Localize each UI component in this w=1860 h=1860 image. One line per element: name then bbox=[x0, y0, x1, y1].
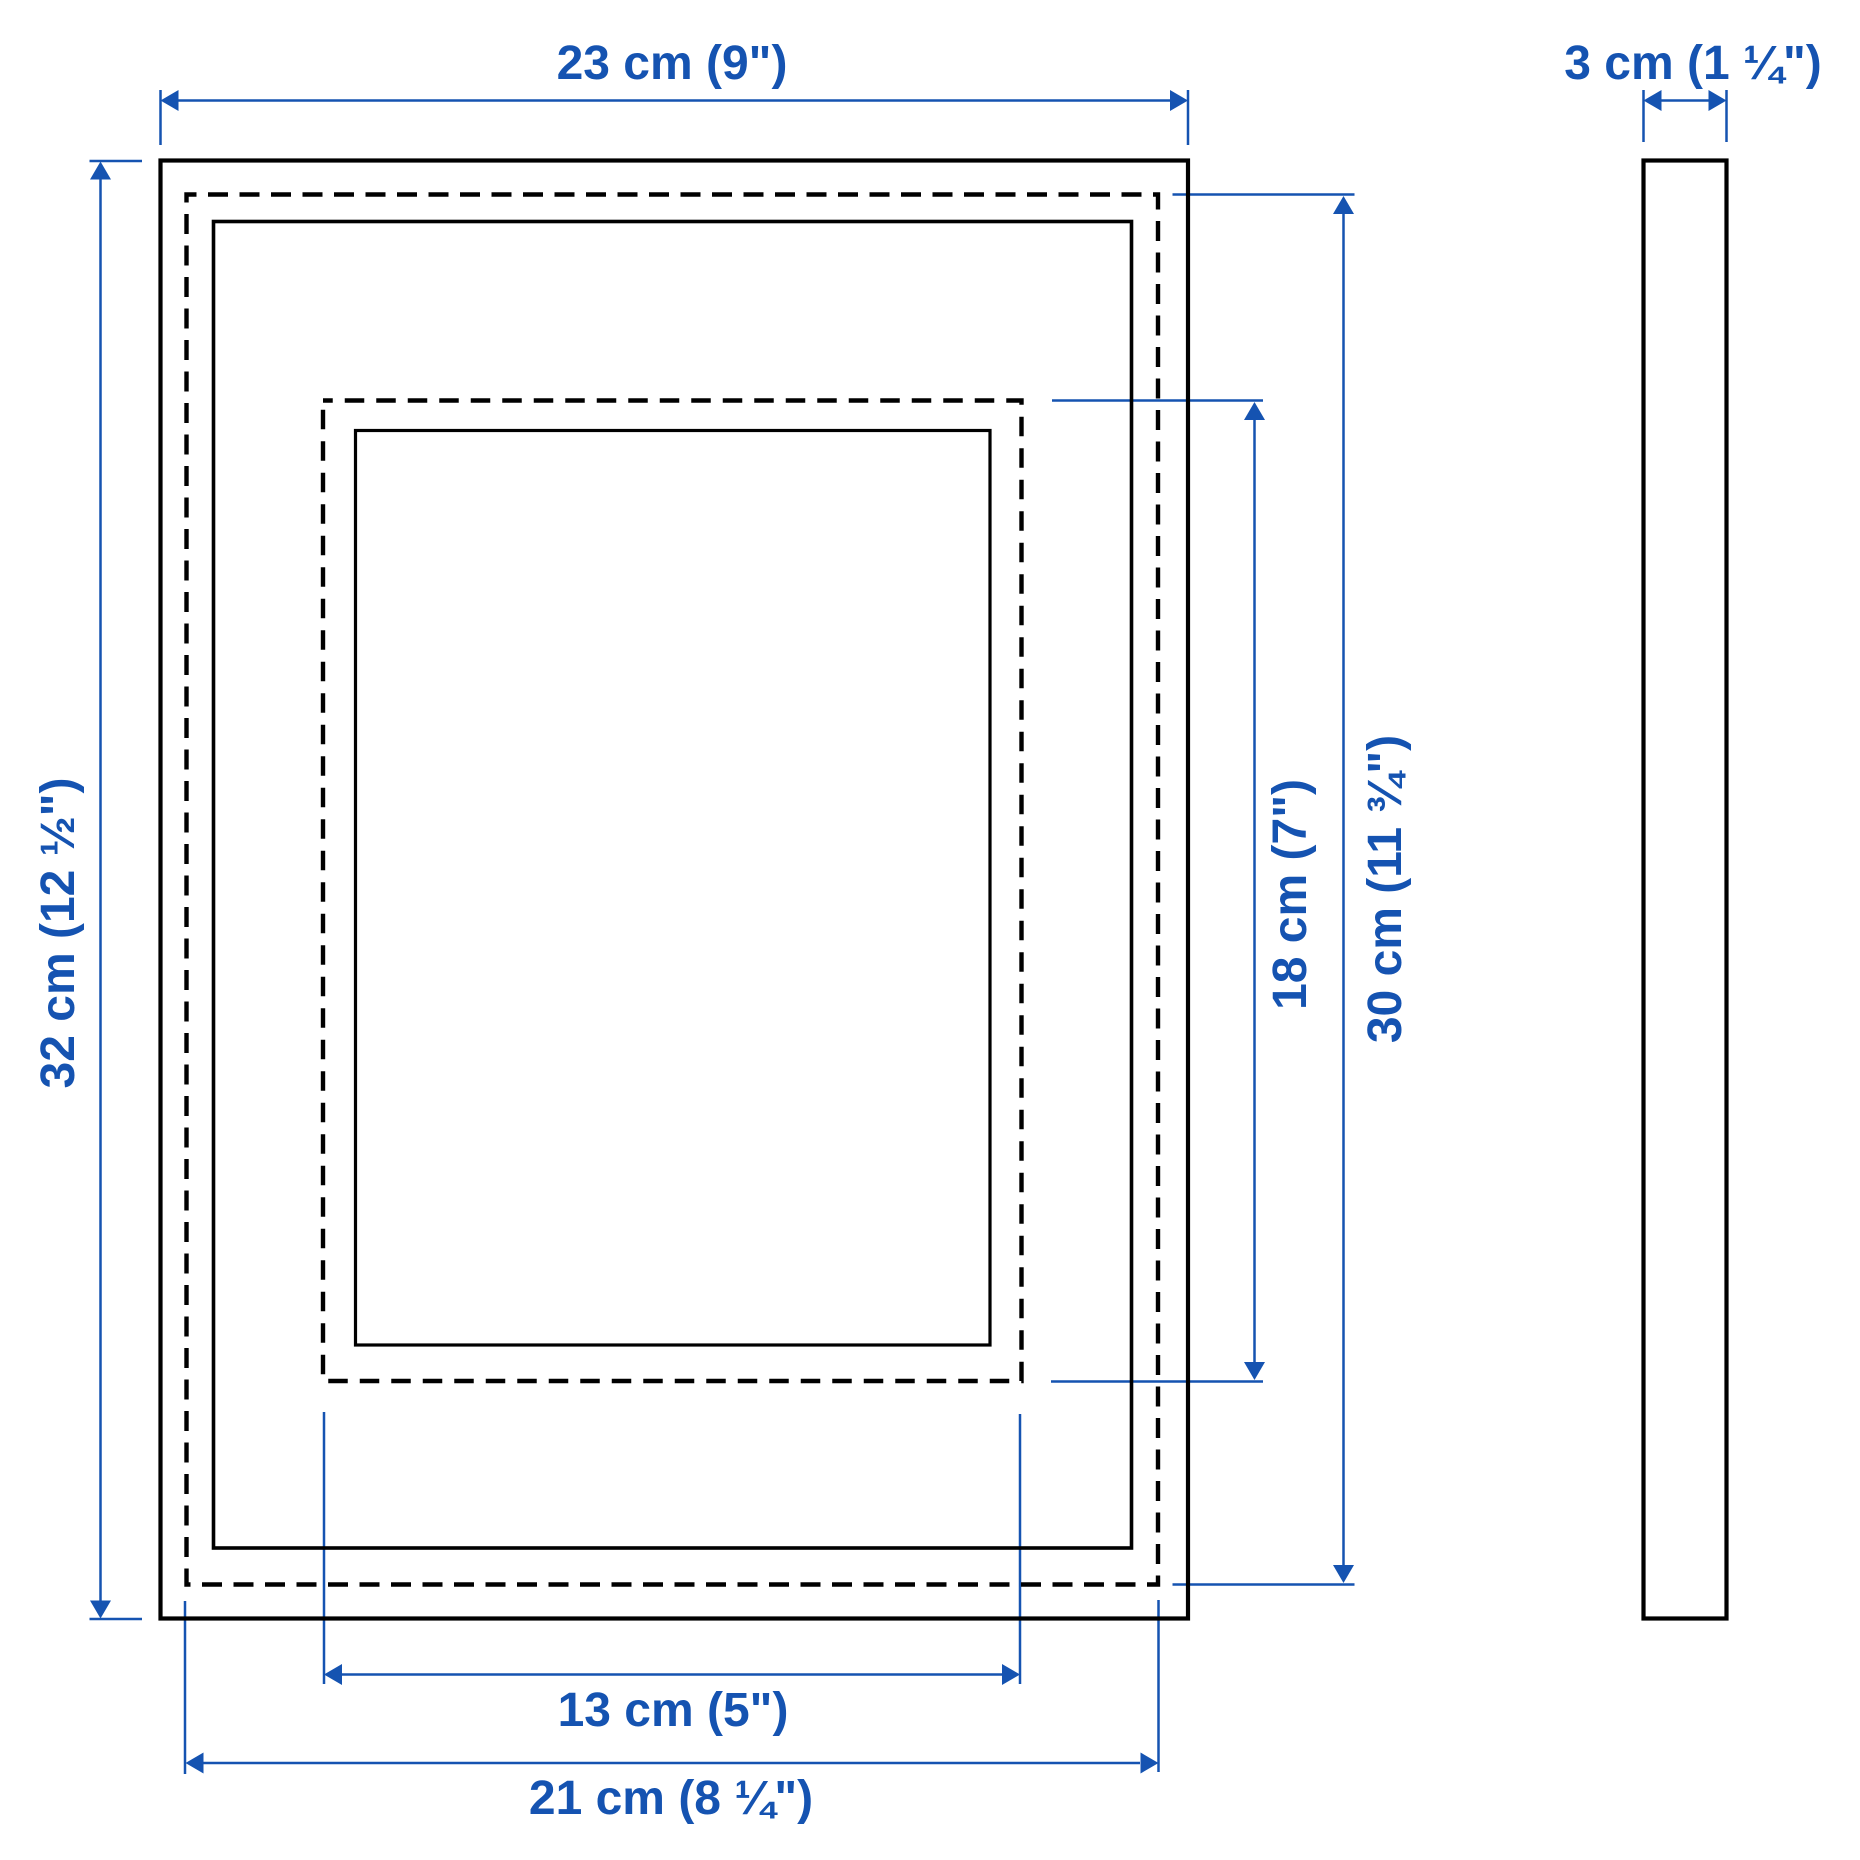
svg-text:21 cm (8 ¼"): 21 cm (8 ¼") bbox=[529, 1772, 813, 1825]
svg-text:13 cm (5"): 13 cm (5") bbox=[558, 1684, 789, 1737]
svg-text:3 cm (1 ¼"): 3 cm (1 ¼") bbox=[1564, 37, 1822, 90]
svg-text:18 cm (7"): 18 cm (7") bbox=[1264, 779, 1317, 1010]
svg-text:23 cm (9"): 23 cm (9") bbox=[557, 37, 788, 90]
svg-text:32 cm (12 ½"): 32 cm (12 ½") bbox=[32, 778, 85, 1089]
svg-text:30 cm (11 ¾"): 30 cm (11 ¾") bbox=[1359, 735, 1412, 1043]
